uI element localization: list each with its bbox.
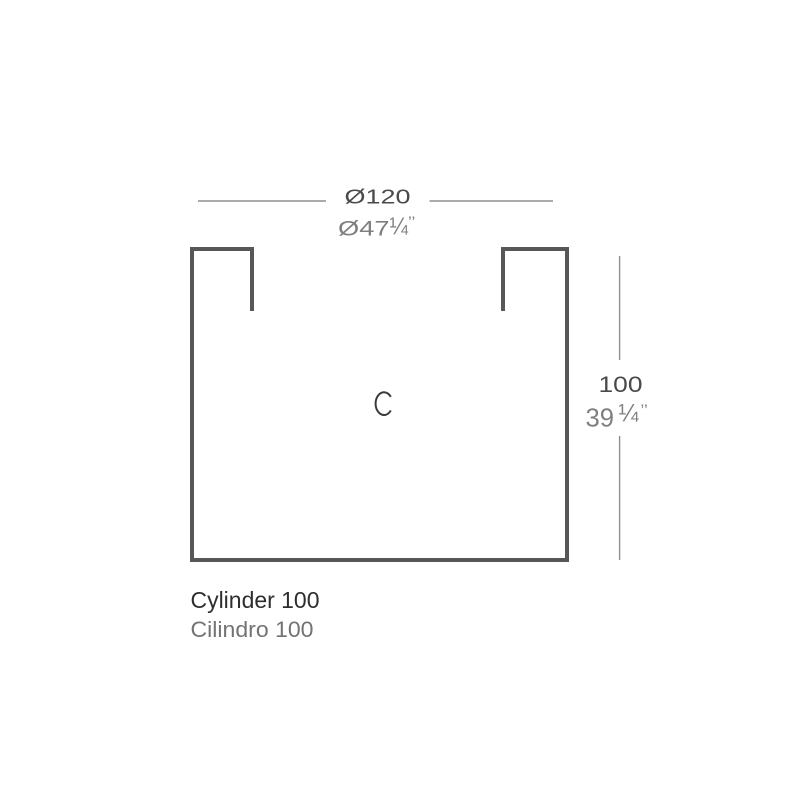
svg-text:¼: ¼ bbox=[619, 400, 640, 428]
svg-text:’’: ’’ bbox=[641, 401, 648, 420]
svg-text:39: 39 bbox=[586, 403, 615, 433]
svg-text:Ø120: Ø120 bbox=[345, 187, 411, 209]
svg-text:¼: ¼ bbox=[390, 213, 409, 240]
svg-text:100: 100 bbox=[599, 372, 643, 397]
svg-text:Ø47: Ø47 bbox=[338, 218, 390, 241]
svg-text:Cylinder 100: Cylinder 100 bbox=[191, 587, 320, 613]
svg-text:Cilindro 100: Cilindro 100 bbox=[191, 617, 314, 642]
svg-text:’’: ’’ bbox=[408, 213, 415, 232]
